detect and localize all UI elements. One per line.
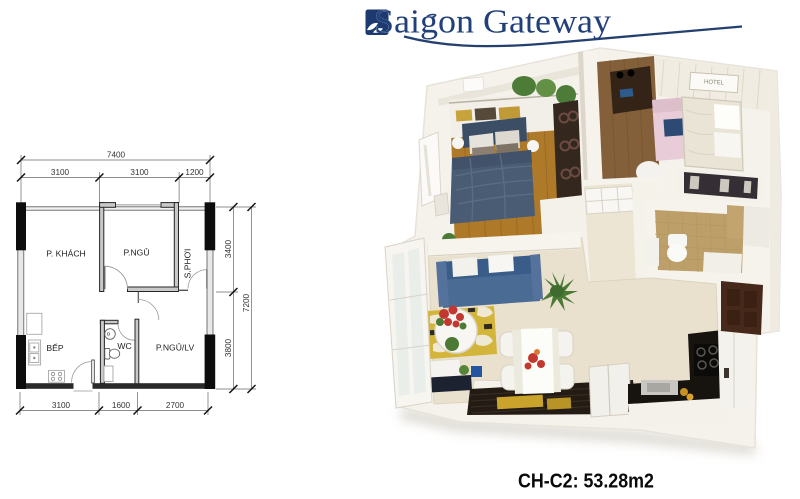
svg-text:P. KHÁCH: P. KHÁCH	[46, 249, 85, 259]
svg-text:3100: 3100	[130, 168, 149, 177]
svg-text:Saigon Gateway: Saigon Gateway	[374, 4, 611, 41]
svg-text:3100: 3100	[51, 168, 70, 177]
svg-text:P.NGỦ/LV: P.NGỦ/LV	[156, 342, 195, 353]
svg-text:P.NGỦ: P.NGỦ	[123, 247, 149, 258]
svg-text:CH-C2: 53.28m2: CH-C2: 53.28m2	[518, 471, 654, 493]
svg-text:7400: 7400	[107, 151, 126, 160]
svg-text:3100: 3100	[52, 401, 71, 410]
svg-text:2700: 2700	[166, 401, 185, 410]
svg-text:S.PHƠI: S.PHƠI	[183, 249, 193, 279]
svg-text:1200: 1200	[185, 168, 204, 177]
svg-text:WC: WC	[117, 341, 131, 351]
svg-text:3800: 3800	[224, 338, 233, 357]
svg-text:7200: 7200	[242, 293, 251, 312]
svg-text:BẾP: BẾP	[46, 343, 63, 353]
svg-text:1600: 1600	[112, 401, 131, 410]
svg-text:3400: 3400	[224, 239, 233, 258]
